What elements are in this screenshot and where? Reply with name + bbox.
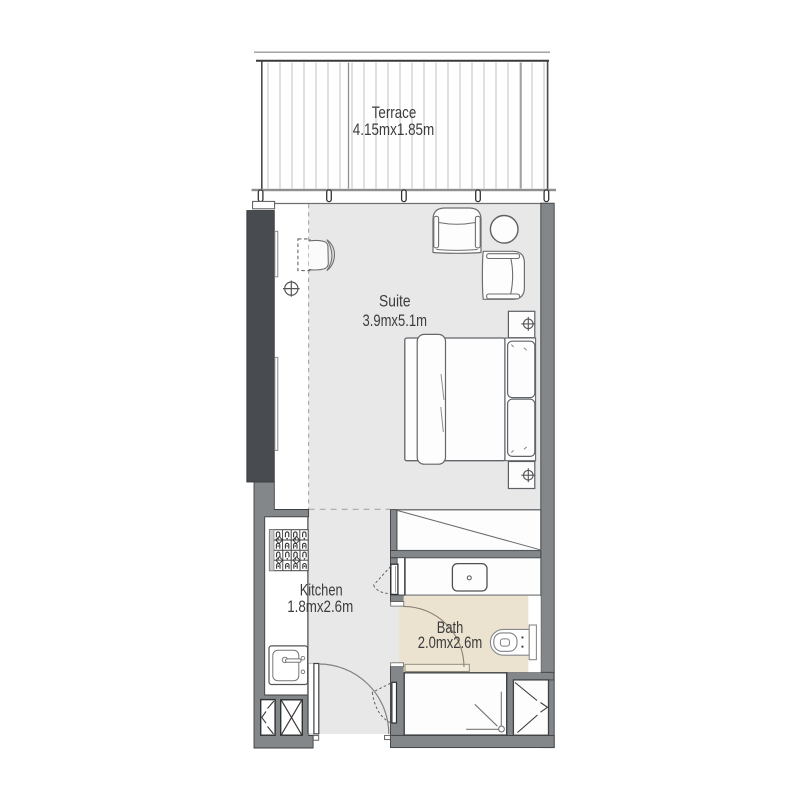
svg-text:Suite: Suite [379, 292, 411, 310]
svg-text:Kitchen: Kitchen [300, 582, 343, 600]
svg-text:1.8mx2.6m: 1.8mx2.6m [287, 598, 353, 616]
svg-text:2.0mx2.6m: 2.0mx2.6m [418, 634, 483, 652]
svg-text:3.9mx5.1m: 3.9mx5.1m [362, 312, 427, 330]
svg-text:Terrace: Terrace [372, 104, 417, 122]
svg-text:4.15mx1.85m: 4.15mx1.85m [353, 121, 435, 139]
